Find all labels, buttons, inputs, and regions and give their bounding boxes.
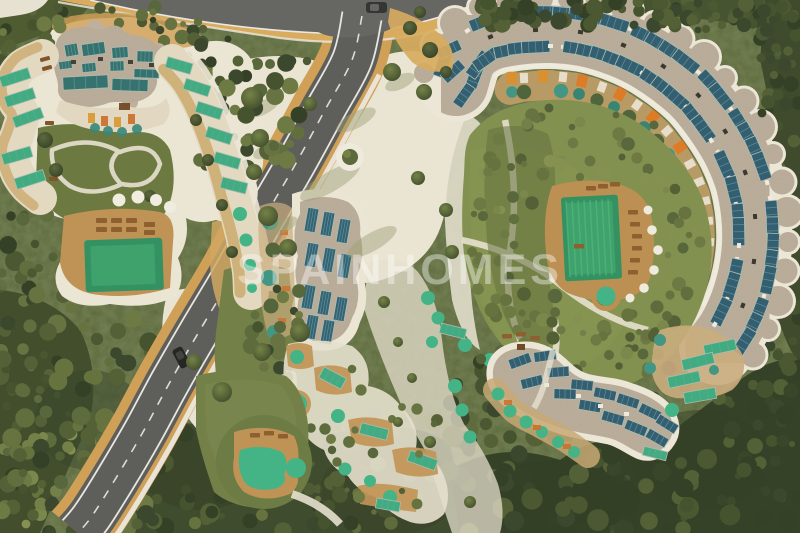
svg-text:SPAINHOMES: SPAINHOMES xyxy=(237,246,563,294)
